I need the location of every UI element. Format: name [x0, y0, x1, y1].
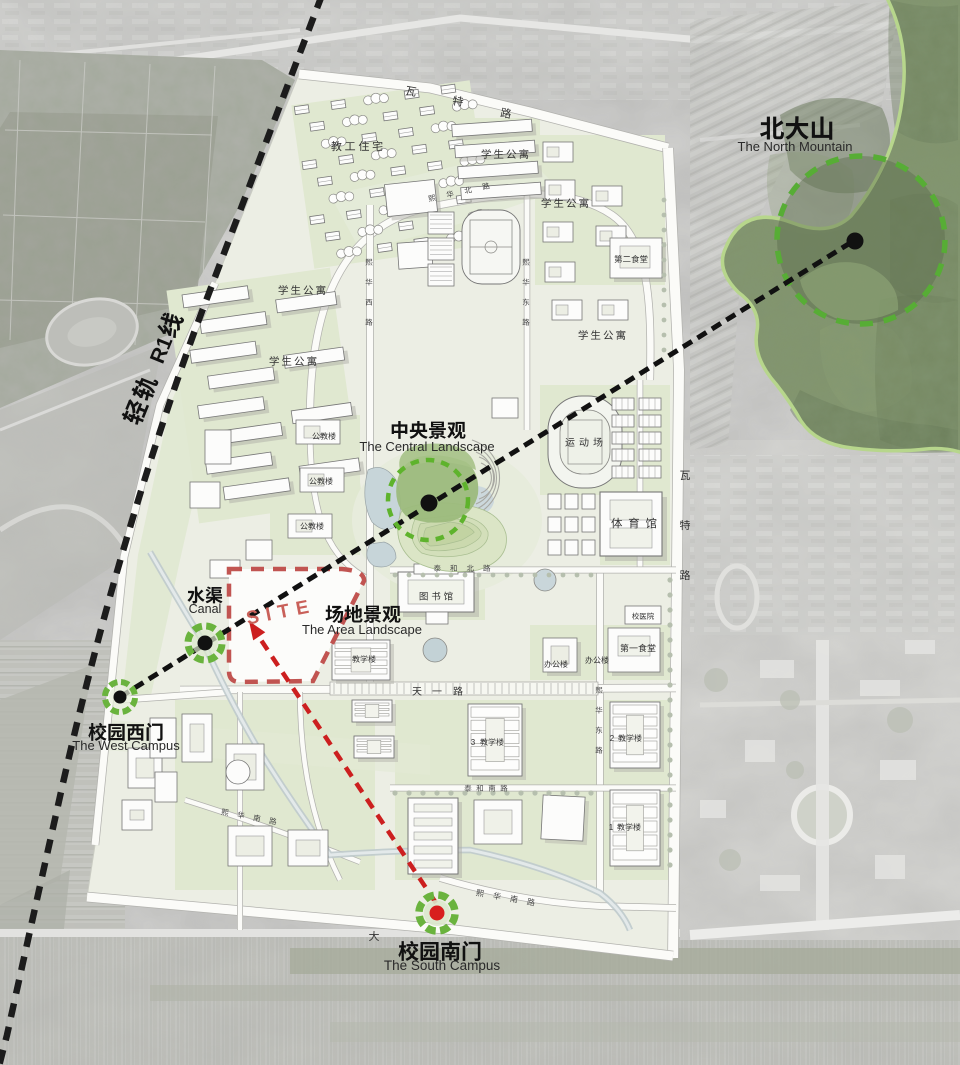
svg-text:The Area Landscape: The Area Landscape: [302, 622, 422, 637]
svg-text:The Central Landscape: The Central Landscape: [359, 439, 494, 454]
svg-text:Canal: Canal: [189, 602, 222, 616]
svg-text:The South Campus: The South Campus: [384, 958, 501, 973]
svg-text:3: 3: [471, 738, 476, 747]
svg-text:The West Campus: The West Campus: [72, 738, 180, 753]
svg-text:The North Mountain: The North Mountain: [738, 139, 853, 154]
svg-text:1: 1: [609, 823, 614, 832]
svg-text:2: 2: [610, 734, 615, 743]
